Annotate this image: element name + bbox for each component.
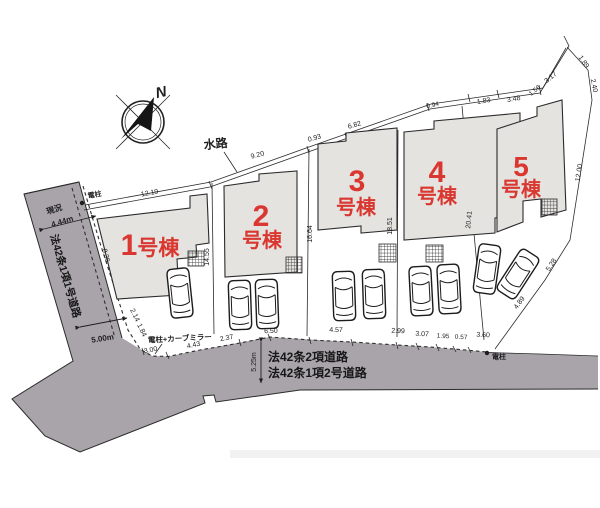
bottom-road-width: 5.25m (251, 352, 258, 372)
frontage-measurement: 2.99 (391, 328, 405, 335)
frontage-measurement: 0.57 (455, 334, 468, 342)
waterway-measurement: 1.83 (476, 97, 491, 106)
compass: N (116, 83, 170, 149)
lot-depth-measurement: 14.55 (204, 248, 211, 266)
car-icon (437, 264, 462, 314)
building-5-label-suffix: 号棟 (501, 177, 542, 201)
building-4-label-suffix: 号棟 (417, 184, 458, 208)
building-5-label: 5 (513, 151, 529, 182)
pole-mirror-label: 電柱+カーブミラー (148, 331, 212, 344)
waterway-measurement: 3.48 (506, 95, 521, 104)
frontage-measurement: 4.57 (329, 327, 343, 334)
building-3-label-suffix: 号棟 (336, 195, 377, 219)
frontage-measurement: 3.00 (143, 346, 158, 356)
frontage-measurement: 3.07 (415, 331, 429, 339)
car-icon (166, 267, 193, 318)
building-2-label: 2 (253, 200, 270, 233)
compass-north-label: N (154, 83, 169, 102)
utility-hatch-3 (379, 244, 396, 262)
building-3-label: 3 (349, 165, 366, 198)
bottom-road-name-1: 法42条2項道路 (268, 349, 349, 364)
utility-hatch-1 (188, 251, 204, 266)
waterway-measurement: 0.93 (307, 133, 322, 144)
waterway-pointer-line (224, 152, 237, 172)
pole-dot-top (80, 201, 84, 205)
building-4-label: 4 (429, 156, 446, 189)
boundary-measurement: 12.00 (575, 163, 585, 182)
lot1-corner-measurement: 1.84 (135, 323, 147, 338)
car-icon (332, 271, 356, 321)
car-icon (228, 280, 252, 330)
boundary-measurement: 2.40 (589, 78, 599, 93)
waterway-measurement: 0.94 (426, 101, 440, 111)
utility-hatch-5 (542, 199, 557, 215)
pole-dot-east (485, 351, 489, 355)
boundary-measurement: 1.89 (576, 55, 590, 70)
car-icon (495, 247, 540, 300)
bottom-road-name-2: 法42条1項2号道路 (268, 365, 368, 380)
pole-label-east: 電柱 (492, 352, 506, 361)
lot-depth-measurement: 16.64 (307, 225, 314, 243)
site-plan: N 水路 12.19 9.20 0.93 6.82 0.94 1.83 3.48… (0, 0, 600, 508)
waterway-measurement: 9.20 (250, 150, 265, 160)
car-icon (409, 266, 434, 316)
compass-needle (121, 97, 154, 139)
frontage-measurement: 2.37 (219, 334, 234, 343)
boundary-measurement: 5.28 (545, 257, 558, 272)
car-icon (362, 269, 386, 319)
frontage-measurement: 3.60 (476, 332, 490, 340)
pole-label-top: 電柱 (87, 189, 102, 200)
frontage-measurement: 1.95 (437, 333, 450, 341)
waterway-label: 水路 (203, 135, 229, 153)
utility-hatch-4 (426, 245, 443, 262)
frontage-measurement: 6.50 (264, 328, 278, 335)
cars (166, 243, 540, 330)
lot1-corner-measurement: 2.14 (128, 308, 140, 323)
utility-hatch-2 (286, 257, 302, 273)
building-2-label-suffix: 号棟 (242, 228, 283, 252)
lot-depth-measurement: 18.51 (387, 217, 394, 235)
car-icon (255, 279, 279, 329)
waterway-measurement: 3.17 (544, 71, 559, 85)
waterway-measurement: 1.56 (528, 84, 542, 98)
boundary-lot1-lot2 (212, 183, 214, 334)
scan-shadow (230, 450, 600, 458)
